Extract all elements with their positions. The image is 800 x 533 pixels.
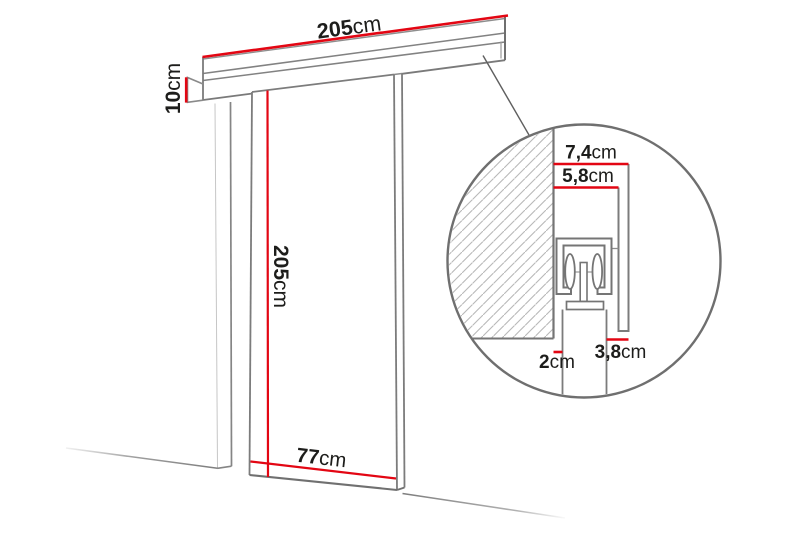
rail-height-unit: cm xyxy=(162,63,185,91)
rail-height-value: 10 xyxy=(162,91,185,114)
rail-height-label: 10cm xyxy=(162,63,185,114)
door-bottom-edge xyxy=(250,475,398,490)
detail-total-depth-value: 7,4 xyxy=(565,143,592,164)
detail-wall-gap-label: 2cm xyxy=(539,352,575,373)
rail-bottom-edge-left-segment xyxy=(203,94,253,101)
detail-total-depth-label: 7,4cm xyxy=(565,143,617,164)
rail-lower-middle-edge xyxy=(203,42,505,81)
roller-right xyxy=(593,254,603,289)
detail-door-offset-unit: cm xyxy=(621,342,646,363)
floor-line-right xyxy=(403,494,566,519)
diagram-canvas: 205cm 10cm 205cm 77cm 7,4cm 5,8cm 3,8cm … xyxy=(0,0,800,533)
door-left-edge xyxy=(250,92,253,475)
detail-door-offset-value: 3,8 xyxy=(595,342,621,363)
doorway-jamb-bottom-edge xyxy=(218,466,232,468)
hanger-strap xyxy=(580,263,587,302)
door-right-edge xyxy=(394,75,397,491)
doorway-jamb-inner-line xyxy=(231,102,232,466)
door-height-dimension-line xyxy=(268,91,269,478)
door-height-value: 205 xyxy=(269,245,292,280)
detail-track-depth-value: 5,8 xyxy=(562,166,588,187)
floor-line-left xyxy=(66,448,218,468)
door-bracket-plate xyxy=(567,302,604,310)
door-height-label: 205cm xyxy=(269,245,292,308)
door-top-thickness-edge xyxy=(394,74,402,75)
rail-length-value: 205 xyxy=(315,15,354,44)
doorway-jamb-outer-line xyxy=(215,104,218,469)
detail-leader-line xyxy=(483,56,529,136)
door-height-unit: cm xyxy=(269,280,292,308)
rail-length-label: 205cm xyxy=(315,11,382,43)
detail-wall-gap-unit: cm xyxy=(550,352,575,373)
roller-left xyxy=(565,254,575,289)
door-width-value: 77 xyxy=(295,444,320,469)
rail-end-cap xyxy=(188,78,204,103)
door-top-edge xyxy=(252,75,394,93)
detail-track-depth-unit: cm xyxy=(589,166,614,187)
detail-wall-gap-value: 2 xyxy=(539,352,550,373)
detail-total-depth-unit: cm xyxy=(592,143,617,164)
diagram-page: 205cm 10cm 205cm 77cm 7,4cm 5,8cm 3,8cm … xyxy=(0,0,800,533)
door-width-unit: cm xyxy=(318,446,348,472)
detail-track-depth-label: 5,8cm xyxy=(562,166,614,187)
rail-length-unit: cm xyxy=(351,11,383,39)
door-back-edge xyxy=(402,74,405,488)
door-bottom-thickness-edge xyxy=(397,488,405,491)
detail-door-offset-label: 3,8cm xyxy=(595,342,647,363)
